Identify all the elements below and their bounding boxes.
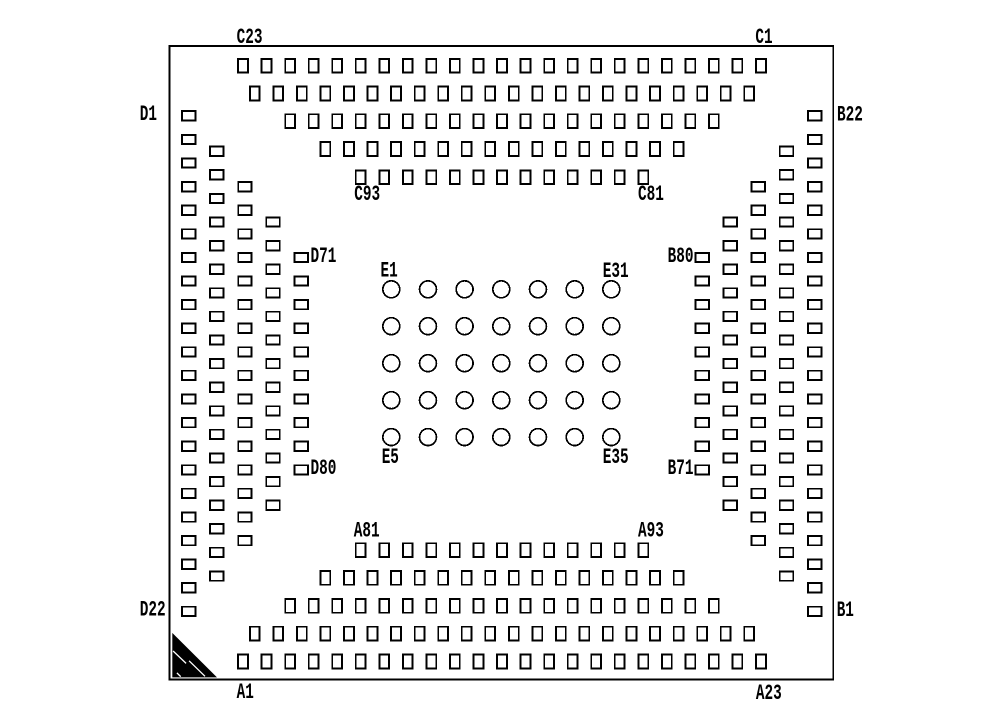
svg-text:A81: A81 (354, 519, 380, 544)
svg-text:B80: B80 (668, 244, 694, 269)
svg-text:E5: E5 (382, 445, 399, 470)
svg-text:B22: B22 (837, 102, 863, 127)
svg-text:C93: C93 (354, 182, 380, 207)
svg-text:D80: D80 (311, 456, 337, 481)
svg-text:E31: E31 (603, 259, 629, 284)
svg-text:A23: A23 (756, 681, 782, 706)
svg-text:A93: A93 (638, 519, 664, 544)
svg-text:E35: E35 (603, 445, 629, 470)
svg-text:E1: E1 (381, 259, 398, 284)
svg-text:D1: D1 (140, 102, 157, 127)
svg-text:C23: C23 (237, 25, 263, 50)
svg-text:C1: C1 (755, 25, 772, 50)
svg-text:A1: A1 (237, 680, 254, 705)
svg-text:D71: D71 (311, 244, 337, 269)
svg-text:B1: B1 (837, 598, 854, 623)
svg-text:C81: C81 (638, 182, 664, 207)
svg-text:B71: B71 (668, 456, 694, 481)
svg-text:D22: D22 (140, 598, 166, 623)
